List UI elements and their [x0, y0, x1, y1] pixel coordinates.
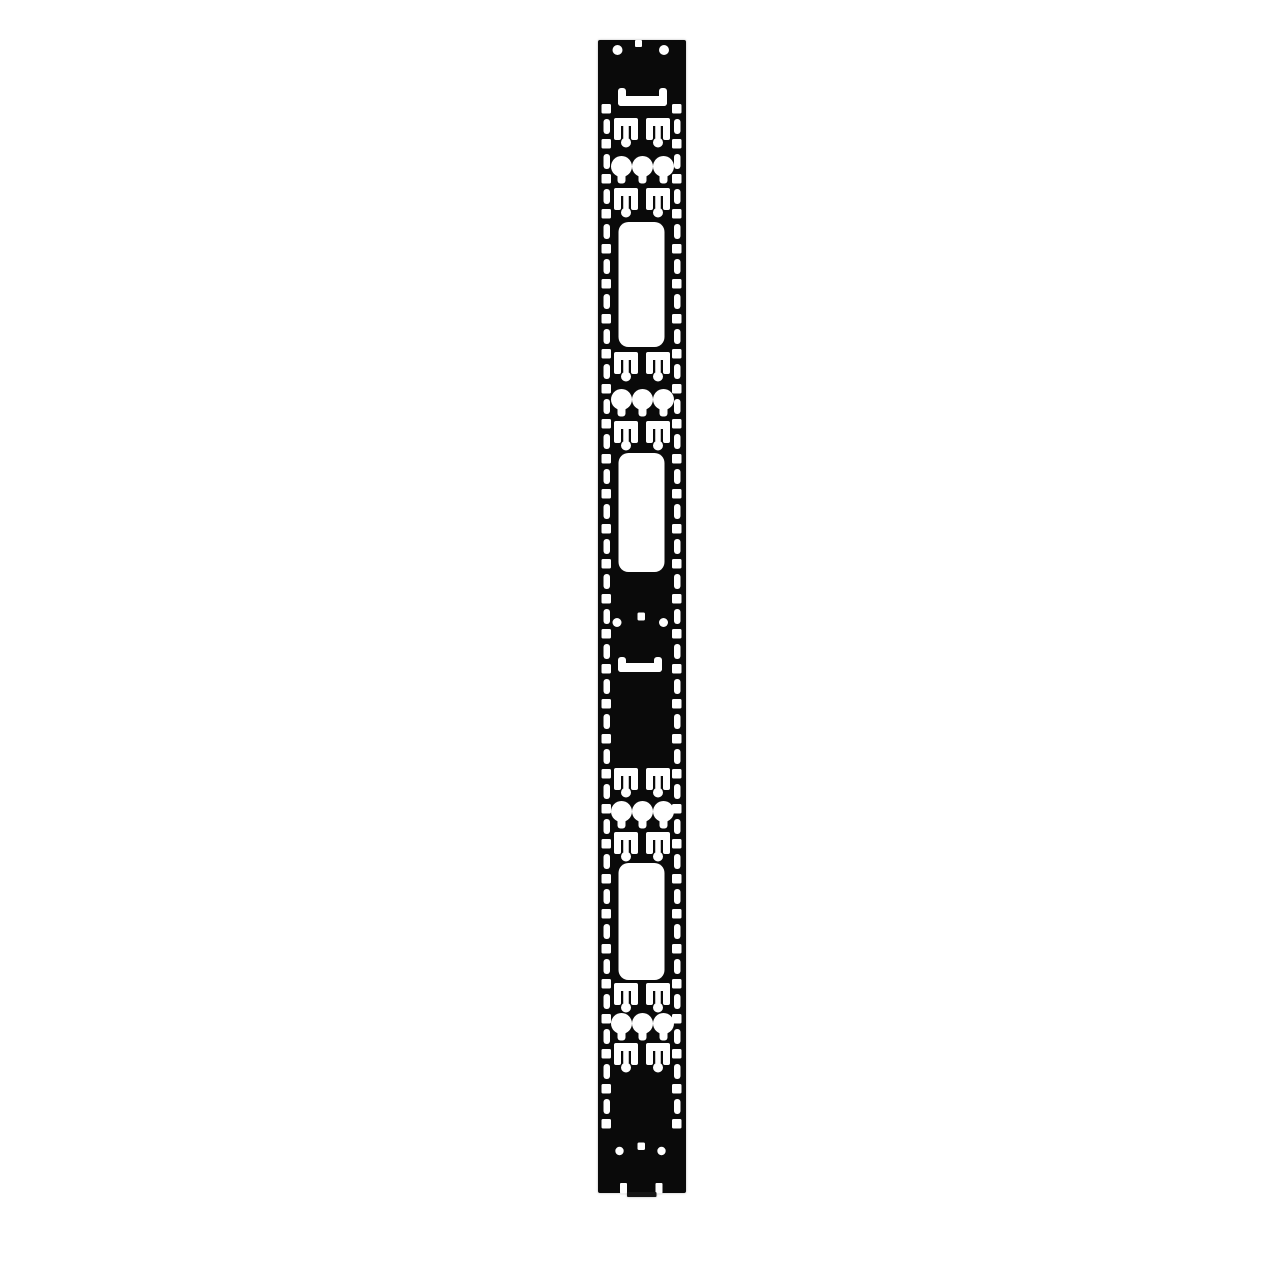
edge-slot-cutout	[604, 329, 611, 344]
edge-square-cutout	[602, 874, 612, 884]
t-slot-cutout	[623, 357, 629, 373]
t-slot-cutout	[653, 138, 663, 148]
edge-square-cutout	[602, 174, 612, 184]
edge-slot-cutout	[604, 154, 611, 169]
edge-slot-cutout	[674, 679, 681, 694]
bottom-notch-cutout	[656, 1183, 663, 1194]
edge-slot-cutout	[674, 959, 681, 974]
t-slot-cutout	[621, 372, 631, 382]
t-slot-cutout	[655, 773, 661, 789]
t-slot-cutout	[631, 193, 638, 210]
t-slot-cutout	[621, 852, 631, 862]
top-round-hole-cutout	[613, 45, 623, 55]
top-edge-notch-cutout	[635, 40, 642, 47]
t-slot-cutout	[653, 441, 663, 451]
edge-square-cutout	[602, 454, 612, 464]
bottom-notch-cutout	[620, 1183, 627, 1194]
keyhole-cutout	[660, 1024, 668, 1041]
t-slot-cutout	[653, 208, 663, 218]
t-slot-cutout	[646, 773, 653, 790]
t-slot-cutout	[655, 1048, 661, 1064]
t-slot-cutout	[621, 441, 631, 451]
edge-slot-cutout	[674, 364, 681, 379]
t-slot-cutout	[631, 357, 638, 374]
t-slot-cutout	[631, 426, 638, 443]
mid-round-hole-cutout	[613, 618, 622, 627]
t-slot-cutout	[653, 372, 663, 382]
edge-square-cutout	[672, 209, 682, 219]
edge-slot-cutout	[604, 889, 611, 904]
edge-square-cutout	[672, 874, 682, 884]
keyhole-cutout	[618, 812, 626, 829]
t-slot-cutout	[653, 788, 663, 798]
edge-slot-cutout	[604, 959, 611, 974]
t-slot-cutout	[621, 1063, 631, 1073]
edge-slot-cutout	[674, 469, 681, 484]
product-image	[0, 0, 1280, 1280]
t-slot-cutout	[623, 123, 629, 139]
edge-square-cutout	[602, 139, 612, 149]
mid-square-hole-cutout	[638, 613, 646, 621]
t-slot-cutout	[655, 123, 661, 139]
edge-slot-cutout	[674, 399, 681, 414]
mid-round-hole-cutout	[659, 618, 668, 627]
edge-square-cutout	[672, 944, 682, 954]
edge-square-cutout	[602, 979, 612, 989]
t-slot-cutout	[663, 773, 670, 790]
t-slot-cutout	[623, 1048, 629, 1064]
t-slot-cutout	[663, 988, 670, 1005]
handle-slot-cutout	[618, 96, 667, 106]
edge-slot-cutout	[604, 119, 611, 134]
edge-square-cutout	[672, 419, 682, 429]
edge-square-cutout	[672, 139, 682, 149]
edge-square-cutout	[602, 804, 612, 814]
t-slot-cutout	[623, 426, 629, 442]
edge-slot-cutout	[674, 189, 681, 204]
handle-slot-cutout	[618, 663, 662, 672]
edge-square-cutout	[672, 979, 682, 989]
edge-slot-cutout	[674, 819, 681, 834]
keyhole-cutout	[618, 1024, 626, 1041]
t-slot-cutout	[646, 357, 653, 374]
t-slot-cutout	[614, 988, 621, 1005]
edge-slot-cutout	[674, 119, 681, 134]
edge-square-cutout	[602, 594, 612, 604]
edge-slot-cutout	[674, 294, 681, 309]
edge-square-cutout	[672, 314, 682, 324]
edge-slot-cutout	[604, 504, 611, 519]
edge-square-cutout	[602, 104, 612, 114]
t-slot-cutout	[663, 426, 670, 443]
edge-slot-cutout	[674, 434, 681, 449]
t-slot-cutout	[614, 1048, 621, 1065]
edge-slot-cutout	[674, 784, 681, 799]
edge-square-cutout	[672, 629, 682, 639]
edge-square-cutout	[602, 1084, 612, 1094]
edge-square-cutout	[602, 629, 612, 639]
t-slot-cutout	[646, 837, 653, 854]
edge-slot-cutout	[674, 889, 681, 904]
edge-square-cutout	[602, 524, 612, 534]
edge-slot-cutout	[604, 714, 611, 729]
keyhole-cutout	[639, 812, 647, 829]
edge-slot-cutout	[604, 224, 611, 239]
edge-slot-cutout	[674, 644, 681, 659]
edge-square-cutout	[602, 384, 612, 394]
edge-slot-cutout	[674, 924, 681, 939]
t-slot-cutout	[646, 426, 653, 443]
edge-slot-cutout	[674, 154, 681, 169]
t-slot-cutout	[614, 837, 621, 854]
edge-slot-cutout	[604, 994, 611, 1009]
edge-square-cutout	[602, 349, 612, 359]
edge-square-cutout	[672, 559, 682, 569]
edge-square-cutout	[672, 1084, 682, 1094]
t-slot-cutout	[646, 988, 653, 1005]
t-slot-cutout	[653, 852, 663, 862]
edge-slot-cutout	[674, 574, 681, 589]
edge-slot-cutout	[674, 749, 681, 764]
t-slot-cutout	[655, 837, 661, 853]
edge-square-cutout	[672, 384, 682, 394]
edge-square-cutout	[602, 419, 612, 429]
edge-square-cutout	[602, 279, 612, 289]
t-slot-cutout	[623, 837, 629, 853]
t-slot-cutout	[614, 773, 621, 790]
edge-square-cutout	[672, 489, 682, 499]
edge-slot-cutout	[674, 609, 681, 624]
edge-square-cutout	[672, 839, 682, 849]
edge-slot-cutout	[604, 609, 611, 624]
t-slot-cutout	[663, 837, 670, 854]
t-slot-cutout	[614, 426, 621, 443]
t-slot-cutout	[646, 1048, 653, 1065]
edge-slot-cutout	[674, 714, 681, 729]
t-slot-cutout	[621, 1003, 631, 1013]
edge-square-cutout	[672, 594, 682, 604]
t-slot-cutout	[614, 123, 621, 140]
edge-square-cutout	[672, 244, 682, 254]
top-round-hole-cutout	[659, 45, 669, 55]
edge-slot-cutout	[604, 854, 611, 869]
edge-square-cutout	[602, 1014, 612, 1024]
edge-slot-cutout	[604, 819, 611, 834]
t-slot-cutout	[623, 988, 629, 1004]
edge-square-cutout	[672, 104, 682, 114]
edge-slot-cutout	[604, 1029, 611, 1044]
keyhole-cutout	[639, 400, 647, 417]
edge-square-cutout	[602, 734, 612, 744]
large-slot-cutout	[619, 453, 665, 572]
t-slot-cutout	[655, 357, 661, 373]
keyhole-cutout	[618, 400, 626, 417]
t-slot-cutout	[655, 426, 661, 442]
edge-slot-cutout	[604, 1064, 611, 1079]
keyhole-cutout	[639, 1024, 647, 1041]
edge-slot-cutout	[604, 924, 611, 939]
t-slot-cutout	[631, 123, 638, 140]
keyhole-cutout	[660, 167, 668, 184]
t-slot-cutout	[653, 1003, 663, 1013]
bottom-round-hole-cutout	[657, 1147, 665, 1155]
edge-slot-cutout	[604, 539, 611, 554]
product-photo	[0, 0, 1280, 1280]
edge-slot-cutout	[674, 1029, 681, 1044]
edge-square-cutout	[602, 664, 612, 674]
edge-slot-cutout	[674, 1064, 681, 1079]
t-slot-cutout	[646, 123, 653, 140]
t-slot-cutout	[663, 193, 670, 210]
edge-square-cutout	[672, 1119, 682, 1129]
edge-slot-cutout	[604, 189, 611, 204]
edge-square-cutout	[602, 769, 612, 779]
edge-square-cutout	[672, 699, 682, 709]
t-slot-cutout	[655, 193, 661, 209]
edge-square-cutout	[672, 454, 682, 464]
edge-slot-cutout	[604, 364, 611, 379]
large-slot-cutout	[619, 222, 665, 347]
edge-slot-cutout	[604, 469, 611, 484]
edge-slot-cutout	[604, 644, 611, 659]
edge-square-cutout	[602, 489, 612, 499]
t-slot-cutout	[631, 988, 638, 1005]
edge-slot-cutout	[674, 504, 681, 519]
t-slot-cutout	[631, 837, 638, 854]
edge-slot-cutout	[604, 679, 611, 694]
edge-slot-cutout	[604, 259, 611, 274]
edge-slot-cutout	[604, 574, 611, 589]
t-slot-cutout	[646, 193, 653, 210]
edge-slot-cutout	[674, 1099, 681, 1114]
edge-slot-cutout	[604, 1099, 611, 1114]
cable-management-rail	[598, 40, 686, 1197]
edge-square-cutout	[602, 699, 612, 709]
t-slot-cutout	[663, 1048, 670, 1065]
large-slot-cutout	[619, 863, 665, 980]
t-slot-cutout	[614, 357, 621, 374]
edge-slot-cutout	[674, 329, 681, 344]
edge-square-cutout	[672, 524, 682, 534]
edge-square-cutout	[602, 314, 612, 324]
edge-slot-cutout	[674, 259, 681, 274]
keyhole-cutout	[639, 167, 647, 184]
keyhole-cutout	[618, 167, 626, 184]
edge-square-cutout	[672, 909, 682, 919]
edge-square-cutout	[602, 209, 612, 219]
t-slot-cutout	[631, 773, 638, 790]
t-slot-cutout	[655, 988, 661, 1004]
keyhole-cutout	[660, 812, 668, 829]
edge-square-cutout	[602, 244, 612, 254]
edge-square-cutout	[602, 559, 612, 569]
t-slot-cutout	[621, 788, 631, 798]
edge-square-cutout	[672, 349, 682, 359]
edge-slot-cutout	[674, 224, 681, 239]
t-slot-cutout	[653, 1063, 663, 1073]
bottom-tab	[627, 1192, 657, 1197]
t-slot-cutout	[663, 357, 670, 374]
edge-square-cutout	[672, 769, 682, 779]
edge-slot-cutout	[674, 994, 681, 1009]
edge-slot-cutout	[604, 294, 611, 309]
t-slot-cutout	[621, 138, 631, 148]
bottom-square-hole-cutout	[638, 1143, 646, 1151]
edge-slot-cutout	[674, 539, 681, 554]
edge-square-cutout	[672, 279, 682, 289]
edge-slot-cutout	[604, 749, 611, 764]
t-slot-cutout	[614, 193, 621, 210]
t-slot-cutout	[621, 208, 631, 218]
edge-square-cutout	[602, 839, 612, 849]
keyhole-cutout	[660, 400, 668, 417]
edge-slot-cutout	[604, 434, 611, 449]
edge-square-cutout	[602, 909, 612, 919]
edge-square-cutout	[672, 664, 682, 674]
edge-square-cutout	[672, 734, 682, 744]
t-slot-cutout	[623, 193, 629, 209]
t-slot-cutout	[631, 1048, 638, 1065]
bottom-round-hole-cutout	[615, 1147, 623, 1155]
t-slot-cutout	[663, 123, 670, 140]
edge-square-cutout	[672, 174, 682, 184]
edge-slot-cutout	[604, 784, 611, 799]
edge-square-cutout	[602, 1049, 612, 1059]
t-slot-cutout	[623, 773, 629, 789]
edge-square-cutout	[672, 1049, 682, 1059]
edge-square-cutout	[602, 944, 612, 954]
edge-slot-cutout	[604, 399, 611, 414]
edge-square-cutout	[602, 1119, 612, 1129]
edge-slot-cutout	[674, 854, 681, 869]
